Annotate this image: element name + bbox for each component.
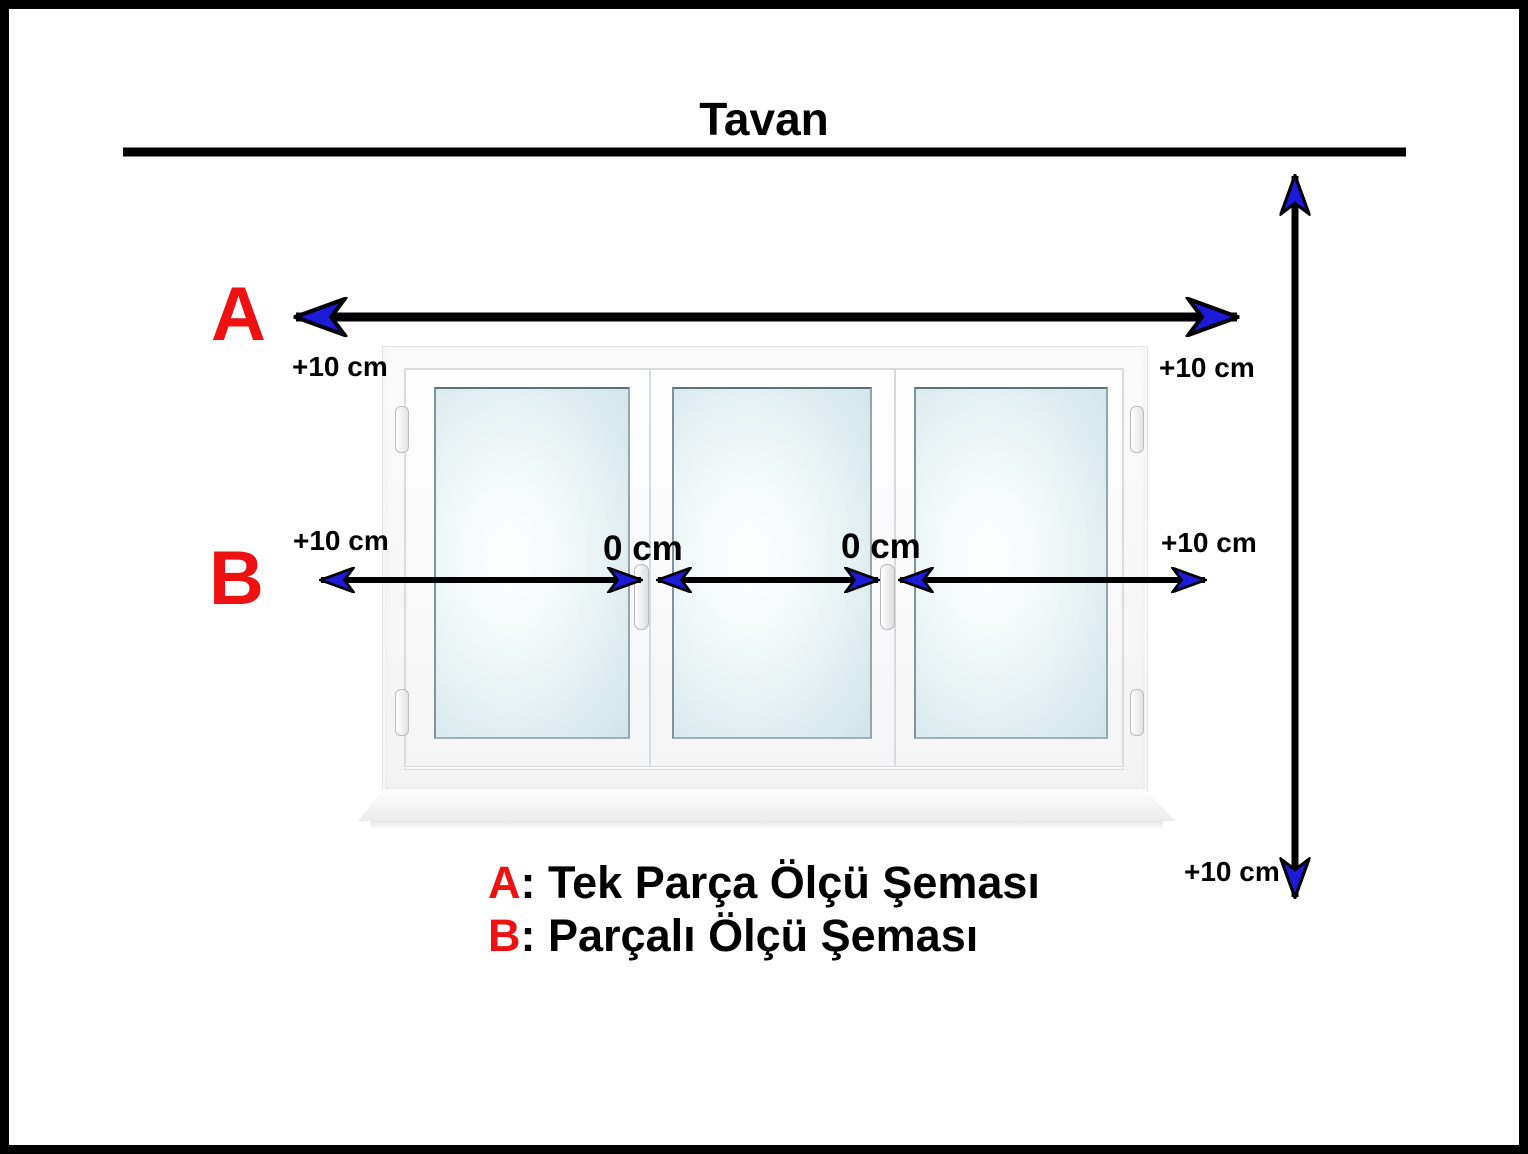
- measurement-diagram: Tavan A B +10 cm +10 cm +10 cm +10 cm +1…: [0, 0, 1528, 1154]
- arrows-layer: [0, 0, 1528, 1154]
